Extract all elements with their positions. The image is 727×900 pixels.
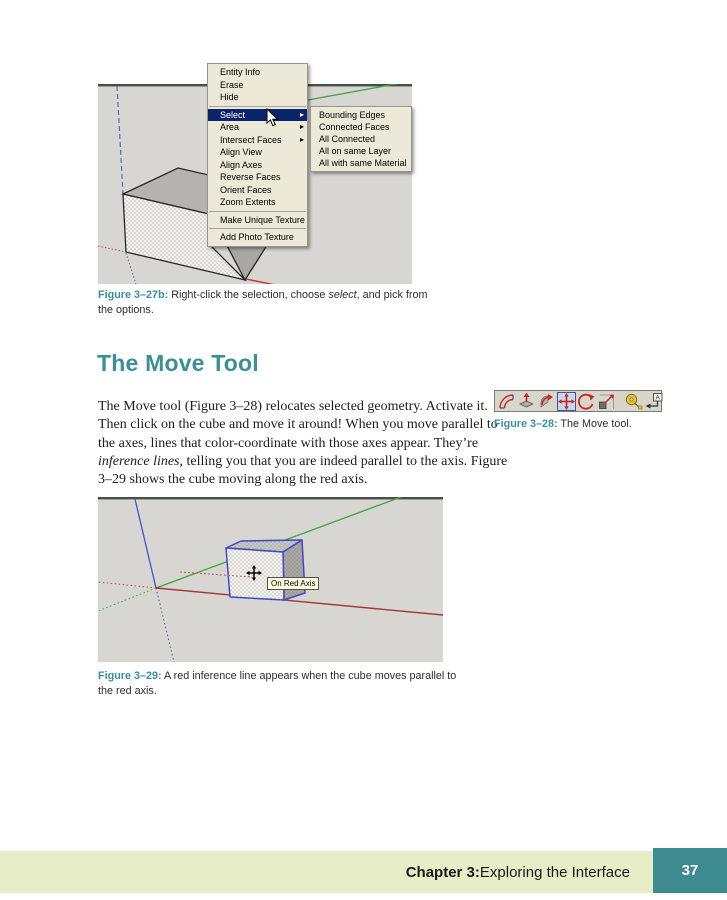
menu-item-label: Align Axes: [220, 160, 262, 170]
menu-item-label: Area: [220, 122, 239, 132]
footer-chapter-title: Exploring the Interface: [480, 864, 630, 881]
menu-separator: [209, 228, 306, 229]
cube-front-face: [226, 548, 284, 600]
select-submenu: Bounding Edges Connected Faces All Conne…: [310, 106, 412, 172]
menu-item-zoom-extents[interactable]: Zoom Extents: [208, 196, 307, 209]
footer-chapter-label: Chapter 3:: [406, 864, 480, 881]
menu-item-area[interactable]: Area: [208, 121, 307, 134]
viewport-top-edge: [98, 497, 443, 499]
selected-cube: [226, 540, 305, 600]
context-menu: Entity Info Erase Hide Select Area Inter…: [207, 63, 308, 247]
menu-item-orient-faces[interactable]: Orient Faces: [208, 184, 307, 197]
body-text: The Move tool (Figure 3–28) relocates se…: [98, 399, 498, 451]
submenu-item-connected-faces[interactable]: Connected Faces: [311, 121, 411, 133]
menu-item-label: Select: [220, 110, 245, 120]
rotate-tool-button[interactable]: [577, 392, 596, 411]
menu-item-label: Make Unique Texture: [220, 215, 305, 225]
caption-text: Right-click the selection, choose: [171, 289, 328, 301]
offset-icon: [497, 392, 516, 411]
menu-item-label: All Connected: [319, 134, 375, 144]
page-number-badge: 37: [653, 848, 727, 893]
follow-me-tool-button[interactable]: [537, 392, 556, 411]
menu-item-label: Entity Info: [220, 67, 260, 77]
section-title: The Move Tool: [97, 350, 259, 377]
figure-27b-caption: Figure 3–27b: Right-click the selection,…: [98, 288, 428, 317]
figure-29-caption: Figure 3–29: A red inference line appear…: [98, 669, 470, 698]
menu-item-label: Intersect Faces: [220, 135, 282, 145]
caption-text-italic: select: [328, 289, 356, 301]
svg-text:A: A: [656, 394, 661, 401]
figure-28-caption: Figure 3–28: The Move tool.: [494, 417, 694, 432]
menu-item-add-photo-texture[interactable]: Add Photo Texture: [208, 231, 307, 244]
move-tool-button[interactable]: [557, 392, 576, 411]
figure-28-toolbar-image: A: [494, 390, 662, 412]
figure-29-label: Figure 3–29:: [98, 670, 162, 682]
menu-item-erase[interactable]: Erase: [208, 79, 307, 92]
page-number: 37: [682, 862, 699, 879]
menu-separator: [209, 211, 306, 212]
scale-icon: [597, 392, 616, 411]
figure-29-image: On Red Axis: [98, 497, 443, 662]
menu-item-intersect-faces[interactable]: Intersect Faces: [208, 134, 307, 147]
push-pull-tool-button[interactable]: [517, 392, 536, 411]
menu-item-reverse-faces[interactable]: Reverse Faces: [208, 171, 307, 184]
figure-27b-label: Figure 3–27b:: [98, 289, 168, 301]
submenu-item-all-connected[interactable]: All Connected: [311, 133, 411, 145]
follow-me-icon: [537, 392, 556, 411]
move-icon: [558, 393, 575, 410]
menu-item-label: Zoom Extents: [220, 197, 276, 207]
menu-item-label: Connected Faces: [319, 122, 390, 132]
menu-item-make-unique-texture[interactable]: Make Unique Texture: [208, 214, 307, 227]
body-paragraph: The Move tool (Figure 3–28) relocates se…: [98, 398, 512, 489]
text-icon: A: [644, 392, 663, 411]
book-page: Entity Info Erase Hide Select Area Inter…: [0, 0, 727, 900]
menu-item-label: Hide: [220, 92, 239, 102]
menu-item-label: Orient Faces: [220, 185, 272, 195]
menu-item-label: Align View: [220, 147, 262, 157]
menu-item-label: Add Photo Texture: [220, 232, 294, 242]
menu-separator: [209, 106, 306, 107]
tape-measure-icon: [624, 392, 643, 411]
rotate-icon: [577, 392, 596, 411]
menu-item-align-axes[interactable]: Align Axes: [208, 159, 307, 172]
text-tool-button[interactable]: A: [644, 392, 663, 411]
footer-bar: Chapter 3: Exploring the Interface: [0, 851, 727, 893]
body-text-italic: inference lines: [98, 454, 180, 469]
inference-tooltip: On Red Axis: [267, 577, 319, 590]
figure-28-label: Figure 3–28:: [494, 418, 558, 430]
menu-item-select[interactable]: Select: [208, 109, 307, 122]
menu-item-label: Reverse Faces: [220, 172, 281, 182]
submenu-item-all-on-same-layer[interactable]: All on same Layer: [311, 145, 411, 157]
mouse-cursor-icon: [266, 108, 279, 127]
submenu-item-all-with-same-material[interactable]: All with same Material: [311, 157, 411, 169]
tape-measure-tool-button[interactable]: [624, 392, 643, 411]
push-pull-icon: [517, 392, 536, 411]
menu-item-label: All with same Material: [319, 158, 407, 168]
submenu-item-bounding-edges[interactable]: Bounding Edges: [311, 109, 411, 121]
caption-text: The Move tool.: [558, 418, 632, 430]
menu-item-label: Bounding Edges: [319, 110, 385, 120]
menu-item-entity-info[interactable]: Entity Info: [208, 66, 307, 79]
scale-tool-button[interactable]: [597, 392, 616, 411]
offset-tool-button[interactable]: [497, 392, 516, 411]
menu-item-hide[interactable]: Hide: [208, 91, 307, 104]
menu-item-align-view[interactable]: Align View: [208, 146, 307, 159]
menu-item-label: Erase: [220, 80, 244, 90]
menu-item-label: All on same Layer: [319, 146, 391, 156]
